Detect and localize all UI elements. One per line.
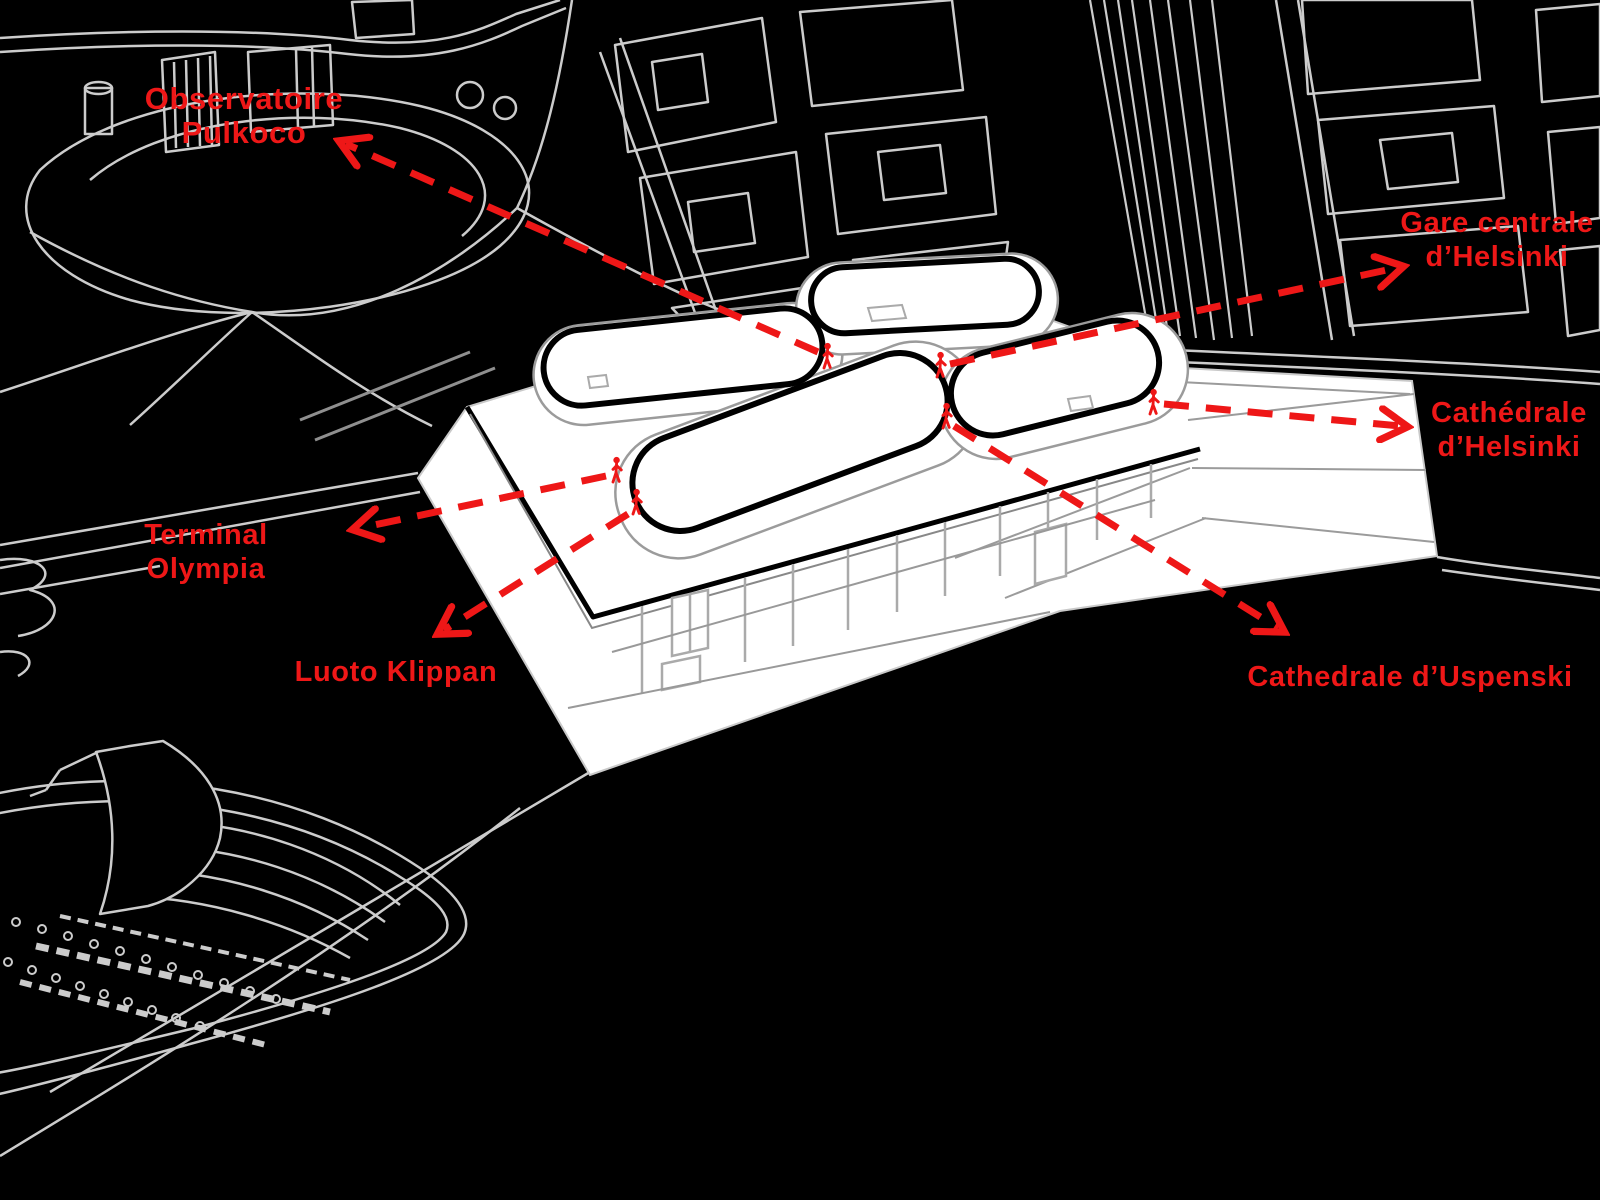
site-drawing bbox=[0, 0, 1600, 1200]
railway-tracks bbox=[1090, 0, 1252, 340]
cruise-ship bbox=[0, 741, 466, 1096]
helsinki-site-diagram: Observatoire Pulkoco Gare centrale d’Hel… bbox=[0, 0, 1600, 1200]
museum-building bbox=[418, 251, 1437, 775]
